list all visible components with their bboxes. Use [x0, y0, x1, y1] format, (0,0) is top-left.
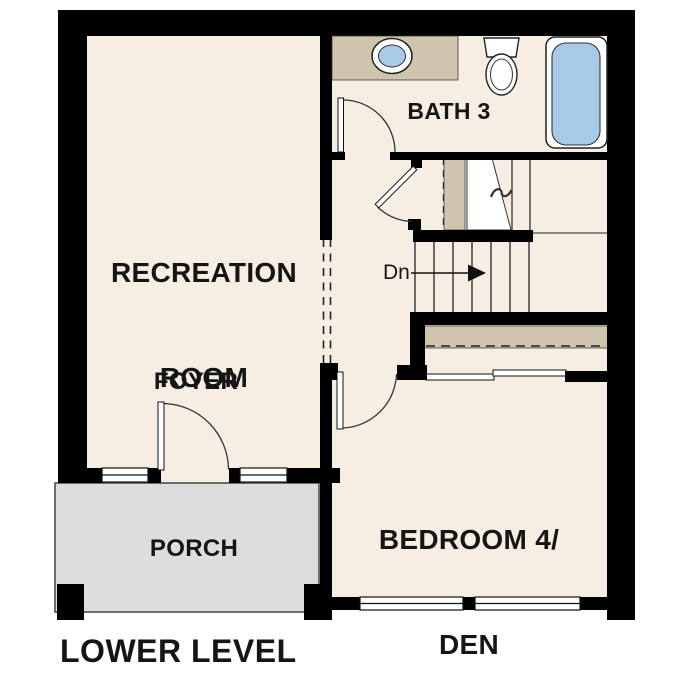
- understair-strip: [424, 326, 608, 348]
- window-foyer-left: [102, 468, 148, 482]
- wall-foyer-bottom: [58, 468, 102, 483]
- wall-divider-lower: [320, 363, 332, 597]
- room-label-bath: BATH 3: [407, 100, 490, 123]
- room-label-foyer: FOYER: [154, 370, 238, 394]
- porch-post-left: [57, 584, 84, 620]
- wall-bedroom-bottom: [580, 597, 635, 610]
- room-label-recreation-line1: RECREATION: [111, 255, 297, 290]
- window-foyer-right: [240, 468, 287, 482]
- plan-title: LOWER LEVEL: [60, 634, 297, 668]
- room-label-bedroom: BEDROOM 4/ DEN: [379, 452, 559, 687]
- bathtub-icon: [546, 37, 607, 148]
- stair-upper-strip: [444, 158, 465, 230]
- room-label-recreation: RECREATION ROOM: [111, 185, 297, 465]
- wall-understair: [413, 312, 635, 325]
- wall-stair-door-stub-bottom: [408, 219, 421, 230]
- wall-divider-upper: [320, 36, 332, 240]
- wall-exterior-left: [58, 10, 87, 483]
- wall-bath-stub: [320, 152, 345, 160]
- room-label-porch: PORCH: [150, 537, 238, 561]
- wall-exterior-right: [607, 10, 635, 597]
- room-label-bedroom-line2: DEN: [379, 627, 559, 662]
- wall-stair-mid: [413, 230, 533, 242]
- wall-exterior-top: [58, 10, 635, 36]
- understair-shelf: [424, 326, 608, 348]
- room-label-bedroom-line1: BEDROOM 4/: [379, 522, 559, 557]
- sink-icon: [372, 39, 412, 74]
- stairs-direction-label: Dn: [383, 262, 410, 283]
- knee-wall-left: [426, 374, 494, 380]
- floor-plan-drawing: [0, 0, 687, 687]
- floor-plan: RECREATION ROOM BATH 3 FOYER BEDROOM 4/ …: [0, 0, 687, 687]
- wall-bath-bottom: [390, 152, 635, 160]
- wall-bedroom-bottom: [332, 597, 360, 610]
- wall-foyer-bottom: [229, 468, 240, 483]
- toilet-icon: [484, 38, 519, 95]
- wall-foyer-bottom: [287, 468, 340, 483]
- knee-wall-right: [493, 370, 566, 376]
- wall-knee-stub-right: [565, 371, 635, 382]
- front-door-threshold: [161, 468, 229, 483]
- wall-bedroom-door-jamb-left: [320, 363, 338, 380]
- wall-bedroom-door-jamb-right: [397, 365, 427, 380]
